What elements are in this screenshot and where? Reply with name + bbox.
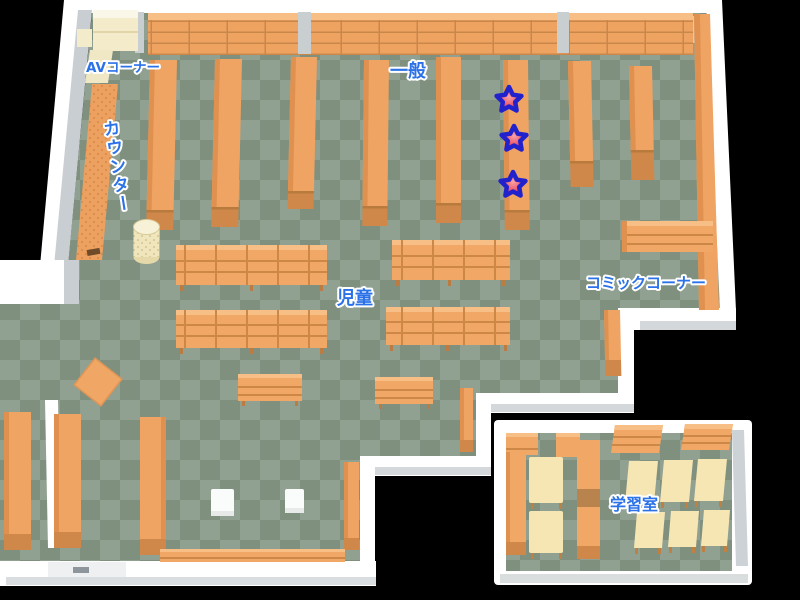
map-canvas: AVコーナー カウンター 一般 児童 コミックコーナー 学習室 [0, 0, 800, 600]
top-wall-shelves [135, 12, 693, 55]
white-box [211, 489, 234, 516]
area-label-av-corner: AVコーナー [86, 60, 160, 76]
library-floor-map: AVコーナー カウンター 一般 児童 コミックコーナー 学習室 [0, 0, 800, 600]
area-label-children: 児童 [336, 287, 373, 309]
area-label-comic-corner: コミックコーナー [586, 274, 706, 292]
cylinder-stand [134, 220, 160, 265]
area-label-general: 一般 [390, 60, 426, 82]
area-label-study-room: 学習室 [610, 495, 658, 514]
white-box [285, 489, 304, 513]
